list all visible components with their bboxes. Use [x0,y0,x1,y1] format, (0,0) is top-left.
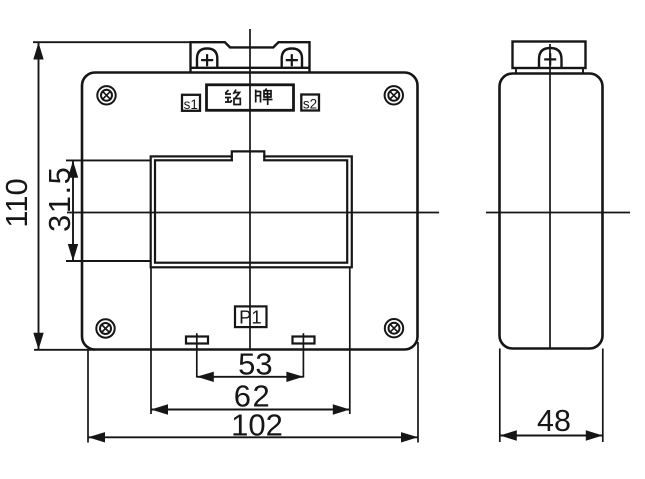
svg-text:s1: s1 [184,97,198,112]
svg-text:110: 110 [0,178,34,227]
svg-text:48: 48 [537,404,571,438]
svg-text:102: 102 [231,408,283,443]
svg-text:s2: s2 [303,97,317,112]
svg-text:53: 53 [238,347,272,382]
svg-text:31.5: 31.5 [42,166,77,232]
